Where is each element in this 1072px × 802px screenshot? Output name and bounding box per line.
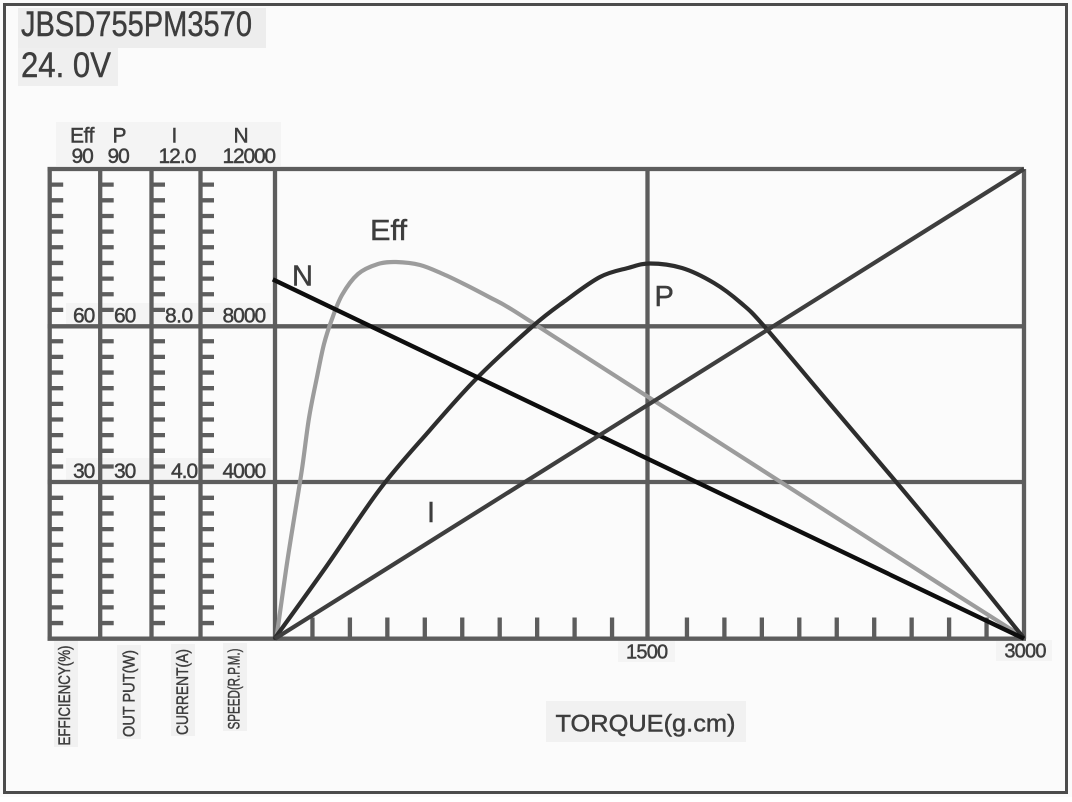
svg-text:60: 60 bbox=[73, 305, 95, 328]
svg-text:4000: 4000 bbox=[223, 460, 266, 483]
svg-text:24. 0V: 24. 0V bbox=[21, 46, 112, 85]
svg-text:1500: 1500 bbox=[626, 642, 668, 664]
svg-text:90: 90 bbox=[108, 145, 130, 168]
svg-text:90: 90 bbox=[72, 145, 94, 168]
svg-text:8000: 8000 bbox=[223, 305, 266, 328]
svg-text:8.0: 8.0 bbox=[165, 305, 193, 328]
svg-text:EFFICIENCY(%): EFFICIENCY(%) bbox=[55, 646, 74, 746]
svg-text:4.0: 4.0 bbox=[171, 460, 198, 483]
svg-text:3000: 3000 bbox=[1004, 641, 1046, 663]
svg-text:30: 30 bbox=[114, 460, 136, 483]
svg-text:TORQUE(g.cm): TORQUE(g.cm) bbox=[556, 711, 736, 738]
svg-text:12.0: 12.0 bbox=[159, 145, 196, 168]
svg-text:P: P bbox=[655, 281, 674, 313]
svg-text:SPEED(R.P.M.): SPEED(R.P.M.) bbox=[225, 649, 244, 730]
svg-text:I: I bbox=[427, 497, 435, 529]
svg-text:CURRENT(A): CURRENT(A) bbox=[173, 649, 192, 735]
svg-text:12000: 12000 bbox=[223, 145, 276, 168]
svg-text:N: N bbox=[292, 261, 313, 293]
svg-text:OUT PUT(W): OUT PUT(W) bbox=[120, 650, 139, 737]
svg-text:JBSD755PM3570: JBSD755PM3570 bbox=[21, 5, 252, 44]
svg-text:Eff: Eff bbox=[370, 215, 408, 247]
svg-text:30: 30 bbox=[73, 460, 95, 483]
svg-text:60: 60 bbox=[114, 305, 136, 328]
